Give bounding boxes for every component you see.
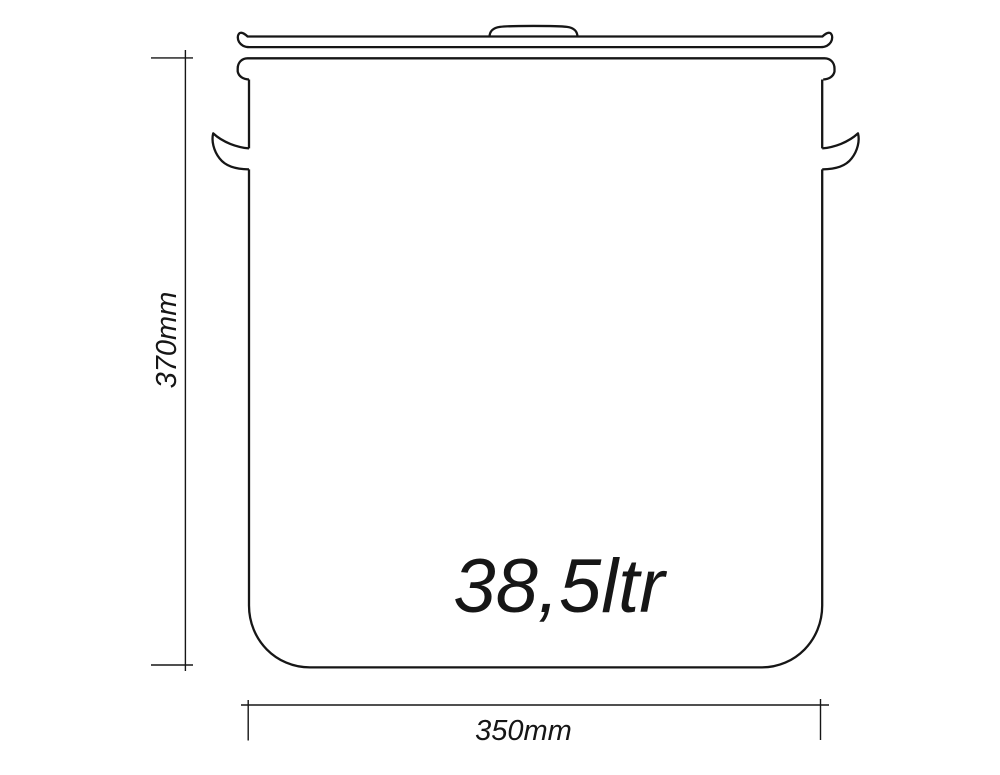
svg-text:370mm: 370mm — [151, 292, 183, 389]
svg-text:38,5ltr: 38,5ltr — [453, 544, 667, 629]
svg-text:350mm: 350mm — [475, 715, 572, 747]
